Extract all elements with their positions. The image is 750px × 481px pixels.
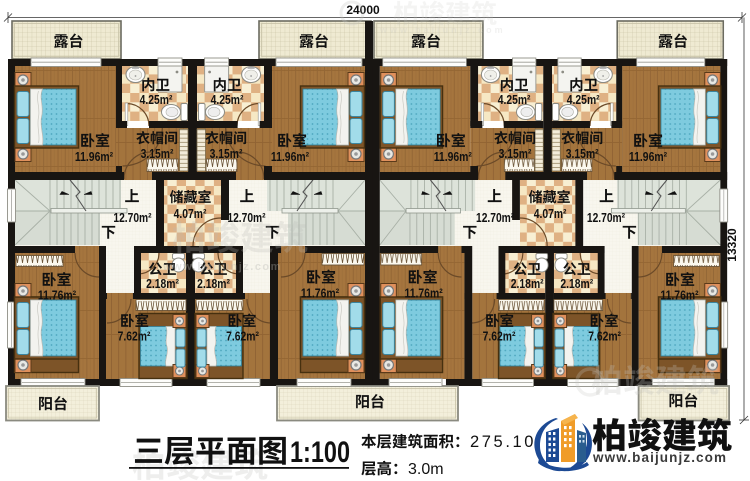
svg-text:11.76m²: 11.76m² <box>38 288 77 303</box>
svg-text:11.96m²: 11.96m² <box>75 149 114 164</box>
svg-text:2.18m²: 2.18m² <box>146 276 179 291</box>
svg-text:2.18m²: 2.18m² <box>197 276 230 291</box>
svg-text:4.25m²: 4.25m² <box>567 92 600 107</box>
svg-text:7.62m²: 7.62m² <box>226 329 259 344</box>
svg-text:4.25m²: 4.25m² <box>211 92 244 107</box>
svg-text:4.25m²: 4.25m² <box>498 92 531 107</box>
svg-text:12.70m²: 12.70m² <box>476 210 515 225</box>
svg-text:11.76m²: 11.76m² <box>660 288 699 303</box>
svg-text:www.baijunjz.com: www.baijunjz.com <box>379 25 506 35</box>
svg-text:www.baijunjz.com: www.baijunjz.com <box>162 261 282 273</box>
svg-text:3.15m²: 3.15m² <box>210 146 243 161</box>
svg-text:12.70m²: 12.70m² <box>113 210 152 225</box>
svg-text:275.10: 275.10 <box>470 433 536 451</box>
svg-text:11.76m²: 11.76m² <box>405 286 444 301</box>
svg-text:3.0m: 3.0m <box>408 461 444 478</box>
svg-text:7.62m²: 7.62m² <box>588 329 621 344</box>
svg-text:11.96m²: 11.96m² <box>271 149 310 164</box>
svg-text:2.18m²: 2.18m² <box>560 276 593 291</box>
svg-text:3.15m²: 3.15m² <box>499 146 532 161</box>
svg-text:3.15m²: 3.15m² <box>566 146 599 161</box>
svg-text:11.96m²: 11.96m² <box>629 149 668 164</box>
svg-text:4.07m²: 4.07m² <box>174 206 207 221</box>
svg-text:2.18m²: 2.18m² <box>511 276 544 291</box>
svg-text:4.07m²: 4.07m² <box>534 206 567 221</box>
svg-text:11.96m²: 11.96m² <box>434 149 473 164</box>
svg-text:www.baijunjz.com: www.baijunjz.com <box>592 450 727 465</box>
svg-text:13320: 13320 <box>725 228 739 262</box>
svg-text:3.15m²: 3.15m² <box>141 146 174 161</box>
svg-text:7.62m²: 7.62m² <box>483 329 516 344</box>
svg-text:7.62m²: 7.62m² <box>118 329 151 344</box>
svg-text:4.25m²: 4.25m² <box>140 92 173 107</box>
svg-text:11.76m²: 11.76m² <box>301 286 340 301</box>
svg-text:12.70m²: 12.70m² <box>587 210 626 225</box>
svg-text:1:100: 1:100 <box>290 436 350 469</box>
